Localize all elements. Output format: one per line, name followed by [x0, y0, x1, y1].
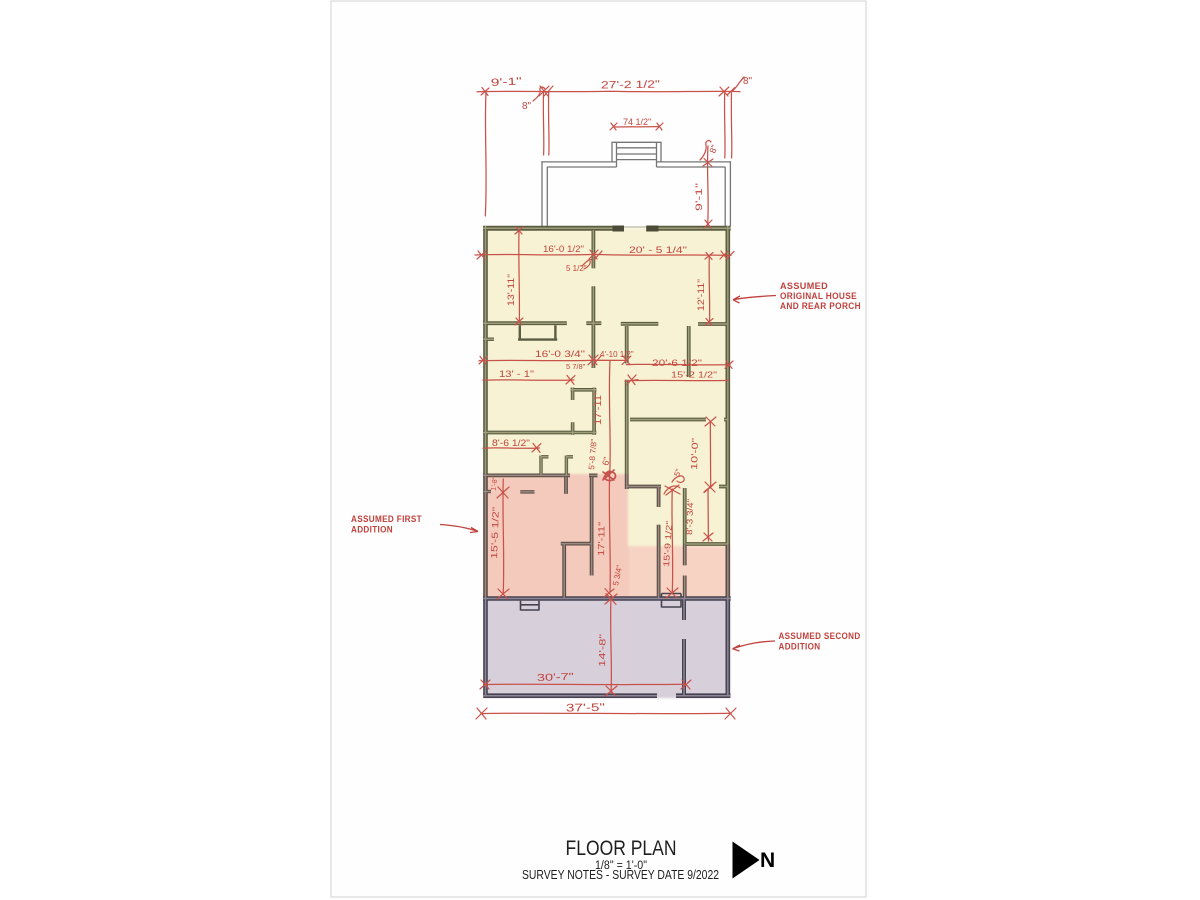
svg-text:FLOOR PLAN: FLOOR PLAN [566, 836, 677, 860]
svg-text:14'-8": 14'-8" [597, 634, 608, 667]
svg-text:16'-0 3/4": 16'-0 3/4" [535, 349, 585, 359]
svg-text:20'-6 1/2": 20'-6 1/2" [652, 358, 702, 368]
svg-text:16'-0 1/2": 16'-0 1/2" [543, 244, 584, 254]
svg-text:AND REAR PORCH: AND REAR PORCH [780, 301, 861, 312]
svg-text:10'-0": 10'-0" [689, 438, 700, 470]
svg-text:15'-5 1/2": 15'-5 1/2" [489, 507, 501, 559]
svg-text:4'-10 1/2": 4'-10 1/2" [600, 350, 634, 359]
svg-text:27'-2 1/2": 27'-2 1/2" [601, 78, 661, 91]
svg-text:5 7/8": 5 7/8" [566, 362, 586, 371]
svg-text:20' - 5 1/4": 20' - 5 1/4" [629, 245, 687, 256]
svg-text:8": 8" [743, 76, 753, 87]
svg-text:ASSUMED SECOND: ASSUMED SECOND [779, 631, 861, 642]
svg-text:5 1/2": 5 1/2" [566, 264, 587, 273]
svg-text:13' - 1": 13' - 1" [499, 369, 534, 379]
svg-text:ADDITION: ADDITION [351, 525, 393, 536]
svg-text:30'-7": 30'-7" [537, 672, 575, 684]
svg-text:74 1/2": 74 1/2" [623, 117, 651, 127]
svg-text:37'-5": 37'-5" [566, 702, 605, 715]
svg-text:8": 8" [522, 101, 532, 112]
svg-text:9'-1": 9'-1" [694, 183, 704, 211]
svg-text:17'-11": 17'-11" [596, 522, 607, 556]
svg-text:13'-11": 13'-11" [506, 274, 516, 306]
svg-text:N: N [760, 849, 775, 872]
svg-text:8'-3 3/4": 8'-3 3/4" [684, 499, 695, 535]
svg-text:15'-2 1/2": 15'-2 1/2" [671, 370, 717, 380]
svg-text:8'-6 1/2": 8'-6 1/2" [492, 438, 530, 448]
svg-text:ASSUMED FIRST: ASSUMED FIRST [351, 514, 422, 525]
svg-text:9'-1": 9'-1" [491, 75, 523, 89]
svg-text:12'-11": 12'-11" [696, 279, 706, 311]
svg-text:SURVEY NOTES - SURVEY DATE 9/2: SURVEY NOTES - SURVEY DATE 9/2022 [522, 868, 719, 882]
svg-text:17'-11": 17'-11" [593, 391, 603, 425]
svg-text:ADDITION: ADDITION [779, 642, 821, 653]
